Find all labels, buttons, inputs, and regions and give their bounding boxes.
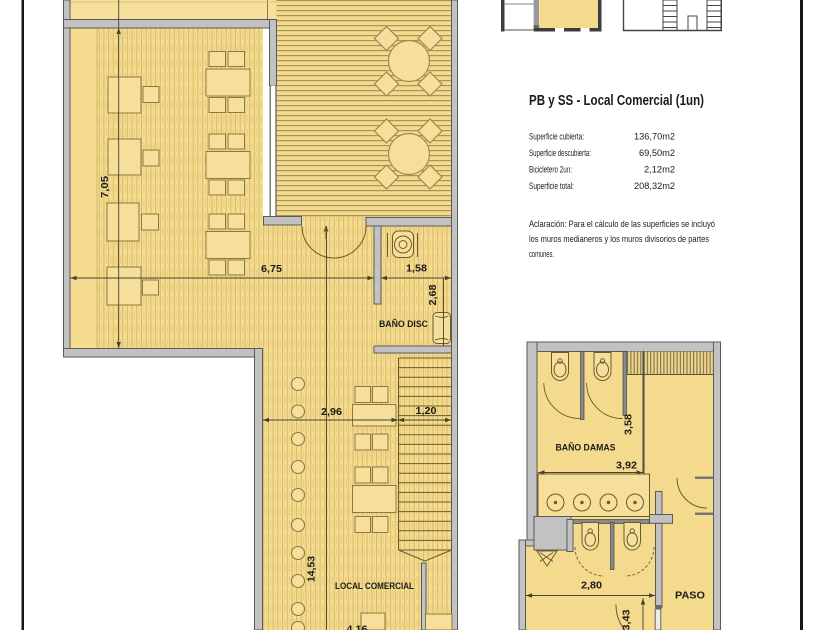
svg-text:1,58: 1,58 (406, 263, 427, 275)
svg-text:2,12m2: 2,12m2 (644, 165, 675, 175)
svg-text:PASO: PASO (675, 591, 705, 602)
svg-text:comunes.: comunes. (529, 249, 554, 259)
svg-text:Superficie total:: Superficie total: (529, 181, 574, 191)
svg-text:los muros medianeros y los mur: los muros medianeros y los muros divisor… (529, 234, 710, 244)
svg-text:2,68: 2,68 (427, 284, 439, 305)
svg-text:3,43: 3,43 (621, 609, 633, 630)
svg-text:PB y SS - Local Comercial (1un: PB y SS - Local Comercial (1un) (529, 93, 704, 109)
svg-text:Superficie cubierta:: Superficie cubierta: (529, 132, 584, 142)
svg-text:3,58: 3,58 (623, 414, 635, 435)
svg-text:136,70m2: 136,70m2 (634, 132, 675, 142)
svg-text:1,20: 1,20 (416, 405, 437, 417)
svg-text:Aclaración: Para el cálculo de: Aclaración: Para el cálculo de las super… (529, 219, 715, 229)
svg-text:Bicicletero 2un:: Bicicletero 2un: (529, 165, 572, 175)
svg-text:208,32m2: 208,32m2 (634, 181, 675, 191)
svg-text:69,50m2: 69,50m2 (639, 148, 675, 158)
svg-text:3,92: 3,92 (616, 460, 637, 472)
svg-text:7,05: 7,05 (99, 176, 111, 198)
svg-text:BAÑO DISC: BAÑO DISC (379, 319, 429, 329)
svg-text:Superficie descubierta:: Superficie descubierta: (529, 148, 591, 158)
svg-text:4,16: 4,16 (347, 624, 368, 630)
svg-text:BAÑO DAMAS: BAÑO DAMAS (556, 443, 616, 453)
svg-text:LOCAL COMERCIAL: LOCAL COMERCIAL (335, 581, 415, 591)
svg-text:2,80: 2,80 (581, 580, 602, 592)
svg-text:14,53: 14,53 (306, 556, 318, 582)
svg-text:2,96: 2,96 (321, 406, 342, 418)
svg-text:6,75: 6,75 (261, 263, 282, 275)
